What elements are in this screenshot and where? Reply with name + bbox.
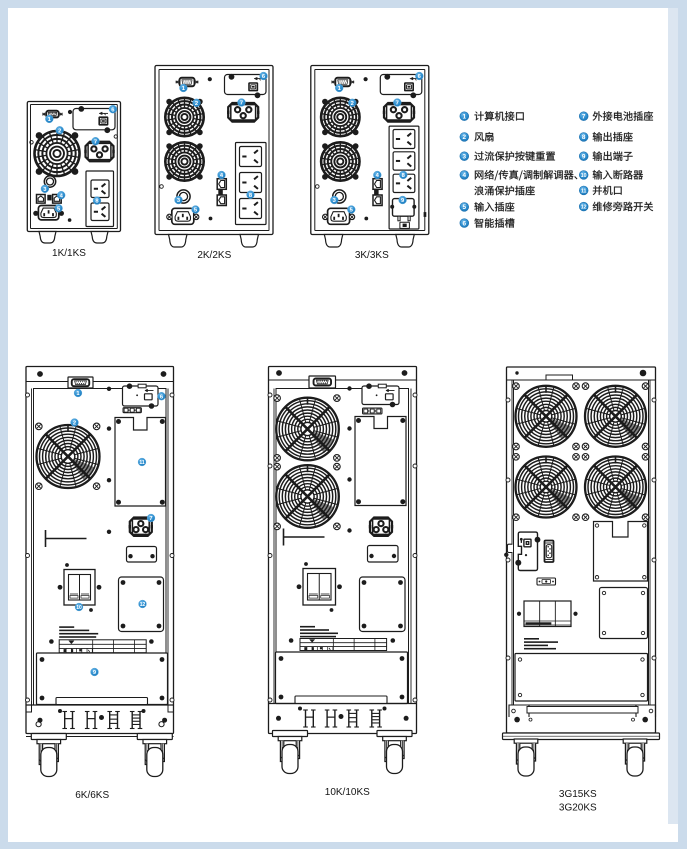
svg-text:10: 10: [76, 605, 82, 611]
svg-text:2: 2: [463, 134, 467, 141]
svg-text:2K/2KS: 2K/2KS: [197, 250, 231, 261]
svg-text:11: 11: [139, 460, 145, 466]
svg-text:8: 8: [582, 134, 586, 141]
svg-text:4: 4: [463, 172, 467, 179]
svg-text:2: 2: [351, 101, 354, 107]
svg-text:6K/6KS: 6K/6KS: [75, 790, 109, 801]
svg-text:5: 5: [463, 204, 467, 211]
svg-text:12: 12: [140, 602, 146, 608]
svg-text:2: 2: [73, 421, 76, 427]
svg-text:10: 10: [581, 173, 587, 179]
svg-text:3G20KS: 3G20KS: [559, 803, 597, 814]
svg-text:12: 12: [581, 204, 587, 210]
svg-text:3: 3: [463, 154, 467, 161]
svg-text:2: 2: [58, 128, 61, 134]
svg-text:3G15KS: 3G15KS: [559, 789, 597, 800]
svg-text:3K/3KS: 3K/3KS: [355, 250, 389, 261]
svg-text:6: 6: [463, 220, 467, 227]
svg-text:7: 7: [582, 114, 586, 121]
svg-text:10K/10KS: 10K/10KS: [325, 787, 370, 798]
svg-text:7: 7: [94, 139, 97, 145]
svg-text:9: 9: [582, 154, 586, 161]
svg-text:7: 7: [396, 101, 399, 107]
svg-text:1K/1KS: 1K/1KS: [52, 248, 86, 259]
svg-text:7: 7: [149, 516, 152, 522]
svg-text:7: 7: [240, 101, 243, 107]
svg-text:11: 11: [581, 188, 587, 194]
svg-text:2: 2: [195, 101, 198, 107]
svg-text:1: 1: [463, 114, 467, 121]
